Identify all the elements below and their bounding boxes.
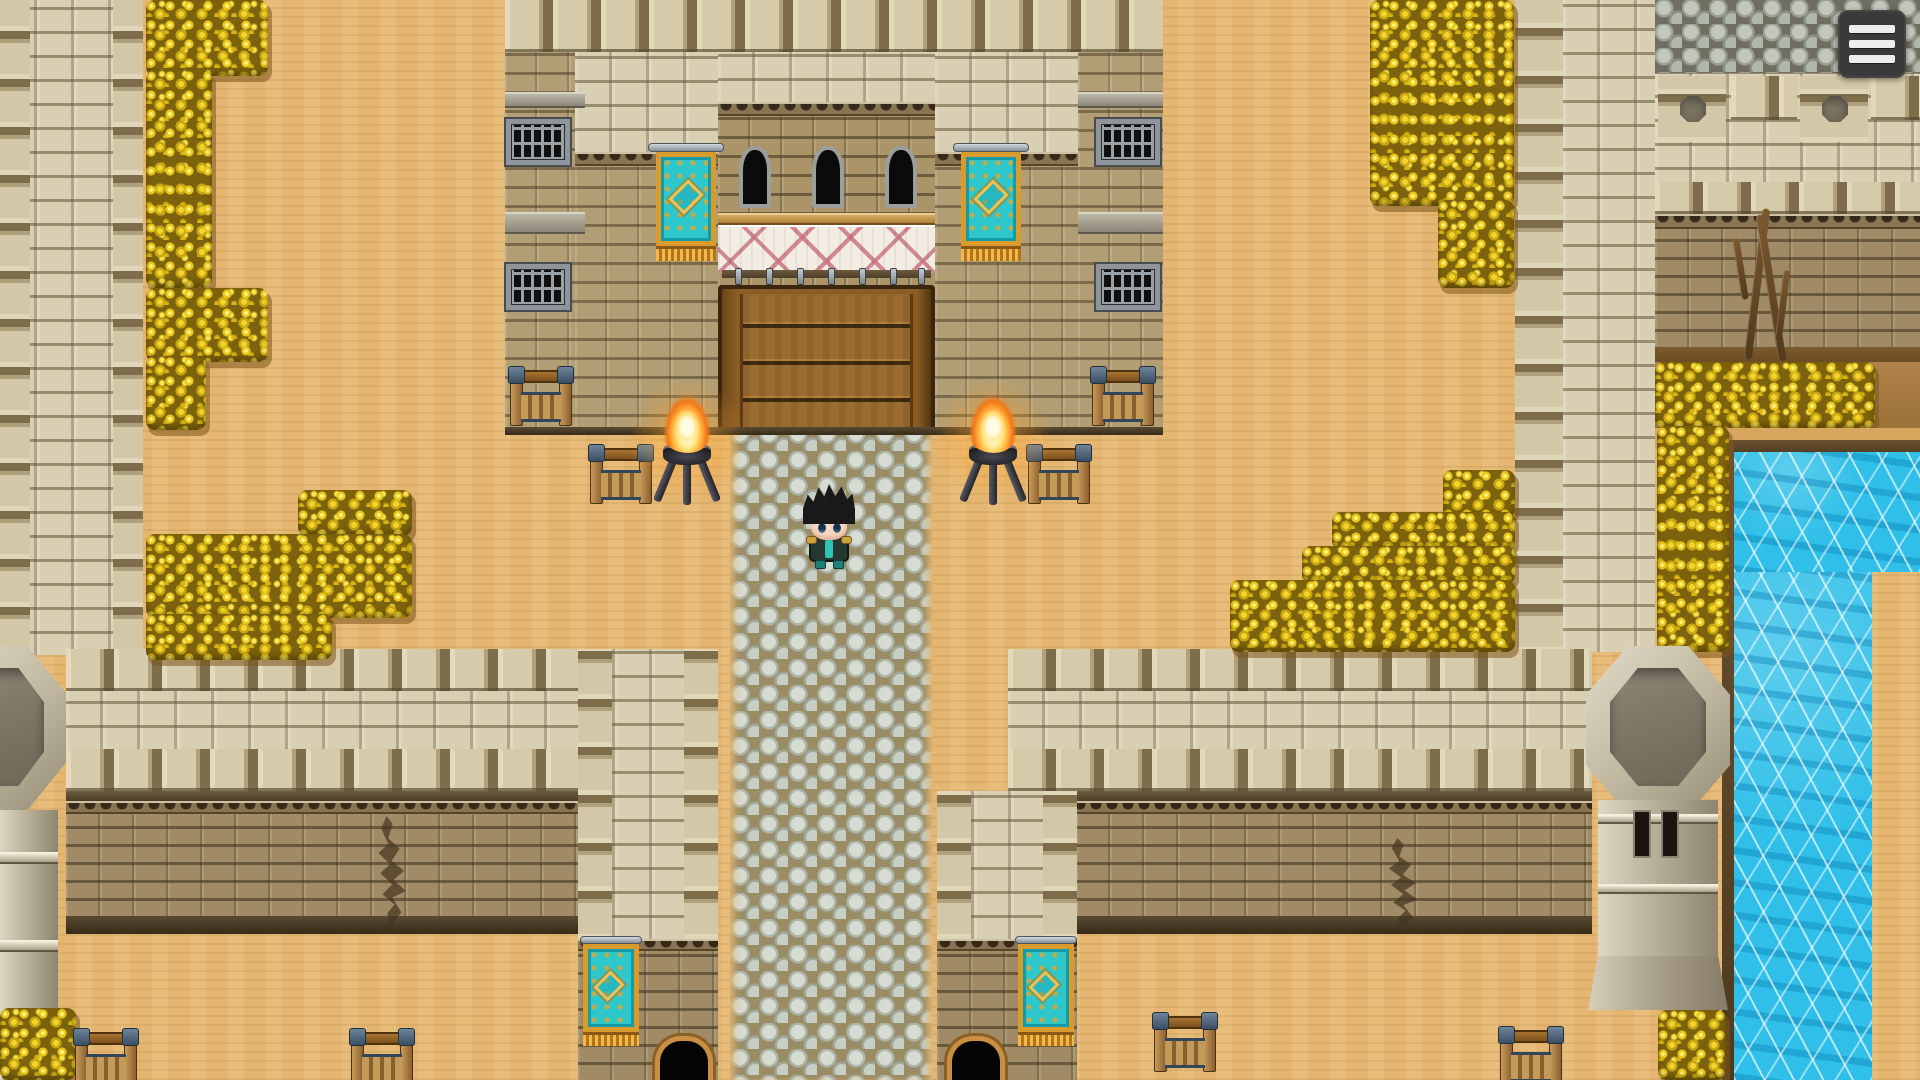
south-wall-east-machicolation [1008, 801, 1592, 814]
merlon-row [66, 749, 580, 791]
tower-cap-recess [1610, 668, 1706, 786]
rampart-left-merlon-outer [0, 0, 30, 655]
south-wall-west-base [66, 916, 580, 934]
player-chest-emblem [825, 540, 833, 558]
player-boot [833, 560, 844, 569]
fence-cap-left [1090, 366, 1107, 384]
pier-merlon-left [578, 649, 612, 939]
parapet-brick [1008, 691, 1592, 749]
hedge-east [1443, 470, 1515, 518]
yard-fence [1498, 1026, 1564, 1080]
fence-slats [1039, 470, 1079, 500]
banner-fringe [583, 1032, 639, 1046]
banner-rod [580, 936, 642, 944]
fence-cap-left [508, 366, 525, 384]
battlement-merlon-b-hole [1822, 96, 1848, 122]
water-channel [1734, 572, 1872, 1080]
rampart-left-merlon-inner [113, 0, 143, 655]
tower-southeast [1586, 646, 1730, 1010]
battlement-block-right [1871, 76, 1920, 120]
tower-arrow-slit [1633, 810, 1651, 858]
entrance-awning [718, 225, 935, 273]
awning-peg [766, 268, 773, 285]
fence-cap-right [1201, 1012, 1218, 1030]
awning-peg [859, 268, 866, 285]
yard-fence [1152, 1012, 1218, 1074]
banner-rod [953, 143, 1029, 152]
hedge-west [146, 534, 412, 618]
castle-ledge [505, 212, 585, 234]
fence-slats [86, 1054, 126, 1080]
awning-beam [718, 213, 935, 225]
player-boot [815, 560, 826, 569]
pier-banner-west [580, 936, 642, 1048]
hedge-northwest [146, 0, 268, 76]
rampart-right-merlon-column [1515, 0, 1563, 652]
hedge-waterside-band [1655, 362, 1875, 428]
gate-pier-east [937, 791, 1077, 939]
battlement-block-mid [1731, 76, 1797, 120]
fence-slats [1165, 1038, 1205, 1068]
parapet-brick [66, 691, 580, 749]
player-hair [803, 484, 855, 524]
awning-rail [722, 270, 931, 278]
fence-cap-left [1498, 1026, 1515, 1044]
hedge-east [1332, 512, 1515, 550]
wall-banner-right [953, 143, 1029, 263]
hedge-northeast [1438, 200, 1514, 288]
hedge-northwest [146, 70, 212, 288]
wall-vine [1723, 208, 1807, 366]
barred-window [1096, 264, 1160, 310]
awning-peg [890, 268, 897, 285]
tower-band [0, 940, 58, 952]
fence-slats [362, 1054, 402, 1080]
banner-fringe [656, 246, 716, 261]
hedge-west [146, 614, 332, 660]
castle-base-shadow [505, 427, 1163, 435]
player-character [801, 484, 857, 570]
merlon-row [1008, 649, 1592, 691]
hedge-northeast [1370, 0, 1514, 206]
hedge-east [1230, 580, 1515, 652]
south-wall-east-ledge [1008, 791, 1592, 801]
fence-cap-right [1139, 366, 1156, 384]
battlement-merlon-a-hole [1680, 96, 1706, 122]
banner-fringe [1018, 1032, 1074, 1046]
castle-gate-door [740, 294, 913, 433]
corner-fence [1090, 366, 1156, 432]
merlon-row [1008, 749, 1592, 791]
south-wall-west-machicolation [66, 801, 580, 814]
barred-window [506, 264, 570, 310]
awning-peg [797, 268, 804, 285]
tower-band [1598, 884, 1718, 894]
hamburger-menu-icon [1849, 55, 1895, 63]
hedge-tower-base-west [0, 1008, 76, 1080]
south-wall-east-base [1008, 916, 1592, 934]
fence-cap-left [73, 1028, 90, 1046]
awning-peg [735, 268, 742, 285]
fence-cap-right [122, 1028, 139, 1046]
game-viewport[interactable] [0, 0, 1920, 1080]
water-upper [1734, 452, 1920, 572]
tower-arrow-slit [1661, 810, 1679, 858]
fence-cap-right [557, 366, 574, 384]
player-shoulder [841, 536, 852, 544]
fence-slats [1103, 392, 1143, 422]
tower-band [0, 852, 58, 864]
fence-cap-right [1075, 444, 1092, 462]
barred-window [1096, 119, 1160, 165]
hamburger-menu-icon [1849, 25, 1895, 33]
south-wall-east-parapet [1008, 649, 1592, 791]
banner-rod [648, 143, 724, 152]
pier-merlon-right [684, 649, 718, 939]
awning-peg [828, 268, 835, 285]
fence-slats [521, 392, 561, 422]
castle-ledge [1078, 212, 1163, 234]
fence-cap-left [349, 1028, 366, 1046]
hedge-northwest [146, 356, 206, 430]
banner-fringe [961, 246, 1021, 261]
fence-cap-left [588, 444, 605, 462]
menu-button[interactable] [1838, 10, 1906, 78]
arched-window [812, 146, 844, 208]
pier-merlon-right [1043, 791, 1077, 939]
brazier-right [956, 393, 1030, 508]
brazier-left [650, 393, 724, 508]
pier-banner-east [1015, 936, 1077, 1048]
gate-pier-west [578, 649, 718, 939]
fence-cap-left [1152, 1012, 1169, 1030]
tower-base [1588, 956, 1728, 1010]
player-shoulder [806, 536, 817, 544]
fence-slats [601, 470, 641, 500]
wall-banner-left [648, 143, 724, 263]
hamburger-menu-icon [1849, 40, 1895, 48]
fence-cap-right [1547, 1026, 1564, 1044]
south-wall-west-parapet [66, 649, 580, 791]
fence-cap-right [398, 1028, 415, 1046]
yard-fence [349, 1028, 415, 1080]
castle-ledge [1078, 92, 1163, 108]
arched-window [739, 146, 771, 208]
hedge-west [298, 490, 412, 536]
castle-parapet [505, 0, 1163, 52]
vine-strand [1732, 238, 1749, 300]
fence-slats [1511, 1052, 1551, 1080]
pier-doorway-west [655, 1036, 713, 1080]
castle-ledge [505, 92, 585, 108]
yard-fence [73, 1028, 139, 1080]
south-wall-west-face [66, 814, 580, 916]
awning-peg [918, 268, 925, 285]
hedge-tower-base-east [1658, 1010, 1726, 1080]
pier-merlon-left [937, 791, 971, 939]
barred-window [506, 119, 570, 165]
hedge-northwest [146, 288, 268, 362]
south-wall-east-face [1008, 814, 1592, 916]
corner-fence [508, 366, 574, 432]
hedge-east [1302, 546, 1515, 584]
tower-band [1598, 814, 1718, 824]
castle-arch-trim-center [718, 102, 935, 116]
rampart-right-wall [1563, 0, 1655, 652]
hedge-waterside-column [1657, 426, 1729, 652]
pier-doorway-east [947, 1036, 1005, 1080]
arched-window [885, 146, 917, 208]
banner-rod [1015, 936, 1077, 944]
south-wall-west-ledge [66, 791, 580, 801]
